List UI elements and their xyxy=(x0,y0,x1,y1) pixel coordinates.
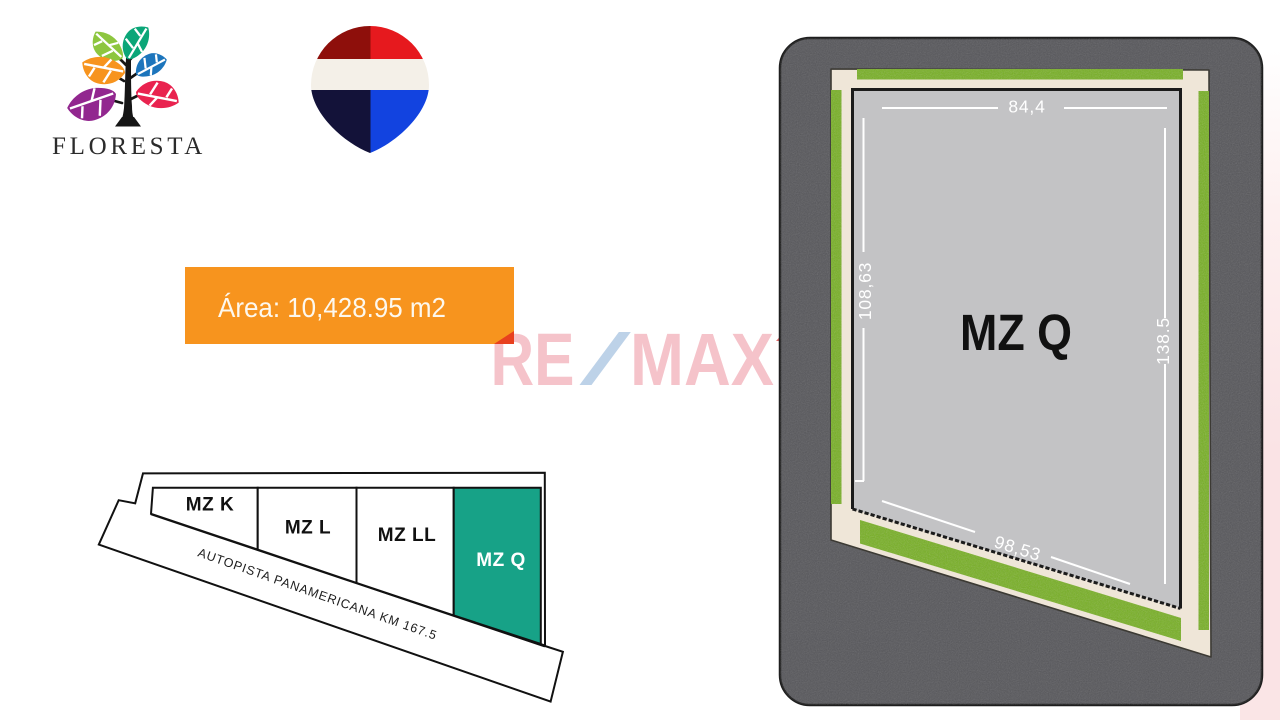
svg-text:Área: 10,428.95 m2: Área: 10,428.95 m2 xyxy=(218,292,446,323)
svg-text:FLORESTA: FLORESTA xyxy=(52,133,206,160)
svg-text:108,63: 108,63 xyxy=(855,262,875,320)
svg-text:MZ LL: MZ LL xyxy=(378,525,436,546)
svg-text:MZ L: MZ L xyxy=(285,518,331,539)
svg-text:84,4: 84,4 xyxy=(1008,97,1045,117)
svg-text:MZ Q: MZ Q xyxy=(476,550,526,571)
svg-text:138.5: 138.5 xyxy=(1153,317,1173,365)
svg-text:MAX: MAX xyxy=(630,318,774,401)
svg-text:MZ Q: MZ Q xyxy=(960,304,1072,361)
svg-text:MZ K: MZ K xyxy=(186,495,234,516)
